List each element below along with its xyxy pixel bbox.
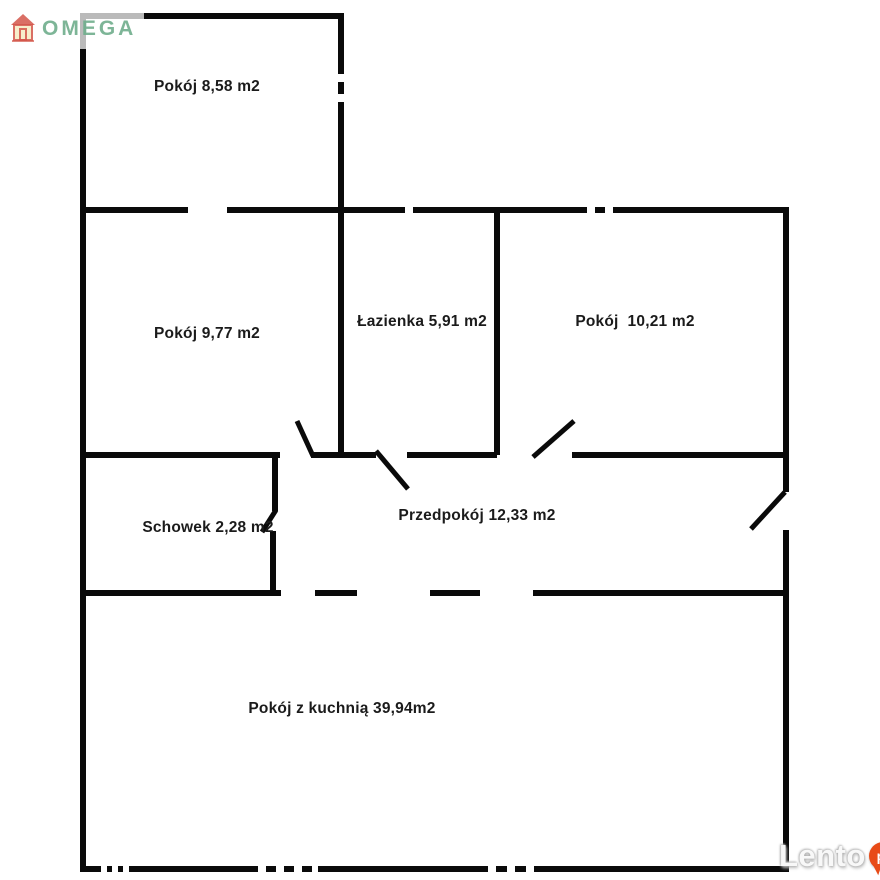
agency-logo: OMEGA [6, 7, 144, 49]
room-label-pokoj-8-58: Pokój 8,58 m2 [154, 78, 260, 96]
room-label-przedpokoj: Przedpokój 12,33 m2 [398, 507, 555, 525]
watermark-text: Lento [779, 840, 866, 871]
door-leaf-room2 [297, 421, 313, 456]
watermark-pin-icon: pl [869, 842, 880, 870]
floorplan-drawing [0, 0, 880, 880]
room-label-pokoj-10-21: Pokój 10,21 m2 [575, 313, 694, 331]
house-icon [9, 12, 37, 44]
door-leaf-room3 [533, 421, 574, 457]
room-label-pokoj-9-77: Pokój 9,77 m2 [154, 325, 260, 343]
door-leaf-entry [751, 492, 785, 529]
room-label-lazienka: Łazienka 5,91 m2 [357, 313, 487, 331]
floorplan-image: Pokój 8,58 m2 Pokój 9,77 m2 Łazienka 5,9… [0, 0, 880, 880]
door-leaf-bathroom [376, 451, 408, 489]
room-label-pokoj-z-kuchnia: Pokój z kuchnią 39,94m2 [248, 700, 435, 718]
site-watermark: Lento pl [779, 840, 880, 871]
room-label-schowek: Schowek 2,28 m2 [142, 519, 273, 537]
agency-logo-text: OMEGA [42, 18, 136, 39]
watermark-badge-text: pl [877, 849, 880, 863]
